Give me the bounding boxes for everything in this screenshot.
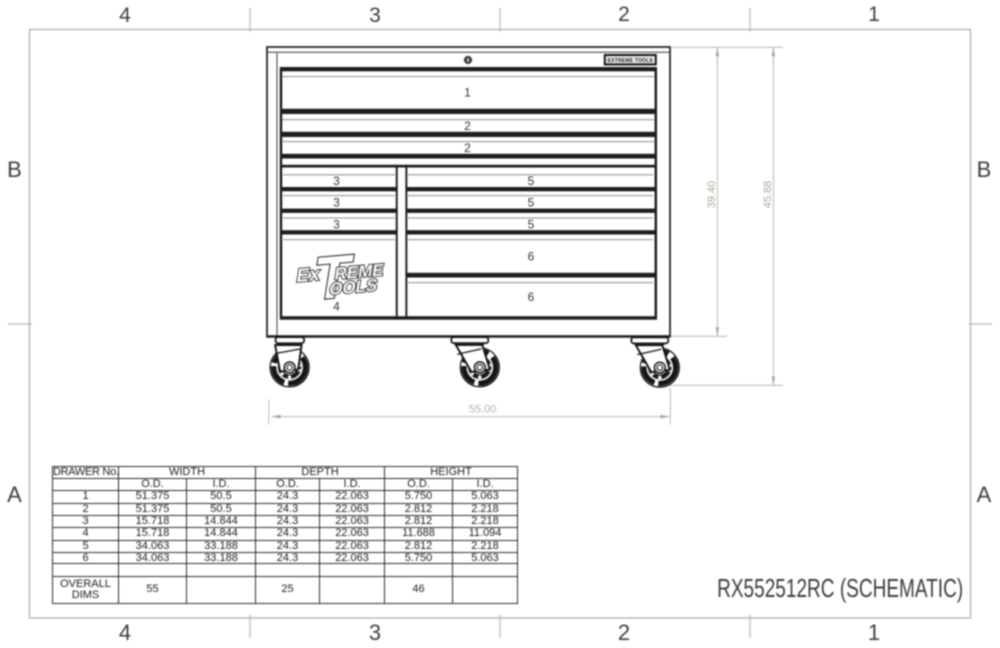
svg-text:2: 2 (618, 620, 630, 645)
svg-text:3: 3 (369, 620, 381, 645)
svg-text:2: 2 (618, 3, 630, 26)
svg-text:A: A (977, 482, 992, 507)
svg-text:B: B (7, 157, 22, 182)
svg-text:3: 3 (333, 174, 340, 188)
svg-text:5: 5 (528, 218, 535, 232)
svg-text:Ex: Ex (295, 264, 322, 287)
svg-text:A: A (7, 482, 22, 507)
svg-text:4: 4 (119, 4, 131, 27)
svg-text:3: 3 (333, 218, 340, 232)
svg-text:B: B (977, 157, 992, 182)
svg-text:1: 1 (464, 86, 471, 100)
svg-text:2: 2 (464, 119, 471, 133)
svg-text:1: 1 (868, 620, 880, 645)
svg-text:45.88: 45.88 (762, 181, 774, 209)
svg-text:2: 2 (464, 141, 471, 155)
svg-text:39.40: 39.40 (706, 181, 718, 209)
svg-text:5: 5 (528, 196, 535, 210)
svg-text:5: 5 (528, 174, 535, 188)
svg-text:EXTREME TOOLS: EXTREME TOOLS (608, 58, 654, 64)
svg-text:3: 3 (369, 4, 381, 27)
svg-text:3: 3 (333, 196, 340, 210)
svg-text:6: 6 (528, 290, 535, 304)
svg-text:1: 1 (868, 3, 880, 26)
svg-text:4: 4 (119, 620, 131, 645)
svg-text:6: 6 (528, 250, 535, 264)
svg-text:55.00: 55.00 (469, 404, 497, 416)
